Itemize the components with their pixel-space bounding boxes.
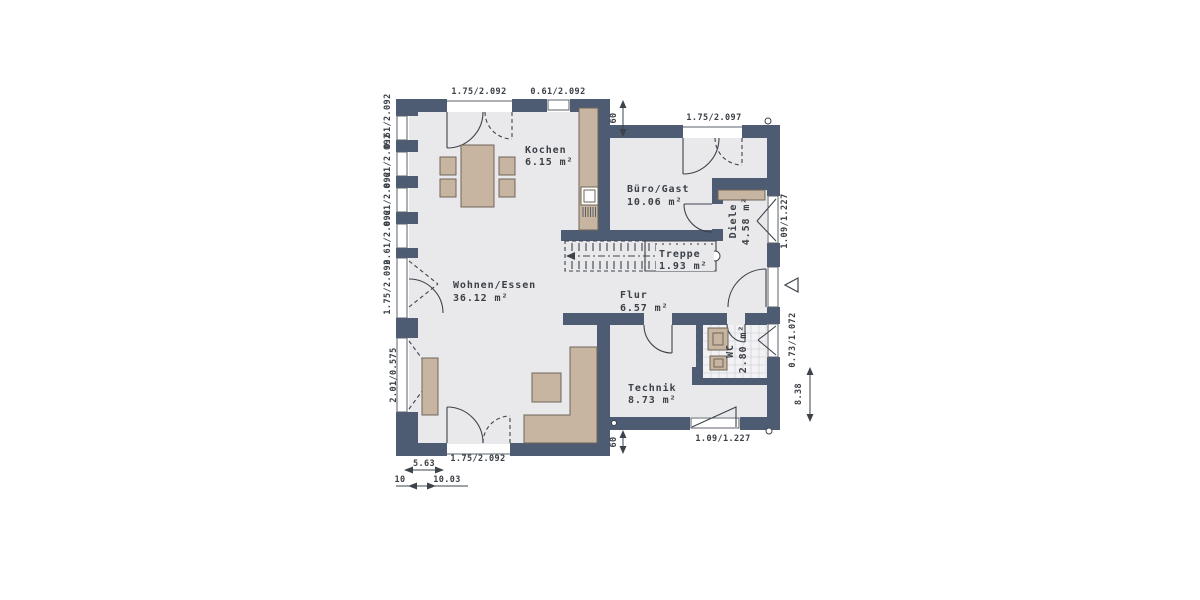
room-area-technik: 8.73 m²	[628, 395, 676, 406]
dim-bottom-door: 1.75/2.092	[450, 454, 505, 464]
arrow-right	[435, 467, 444, 474]
dim-width-partial: 5.63	[413, 459, 435, 469]
window-top	[548, 100, 569, 110]
window-left-1	[397, 116, 407, 140]
dim-wc-window: 0.73/1.072	[788, 312, 798, 367]
dim-width-tick: 10	[394, 475, 405, 485]
dim-top-door: 1.75/2.092	[451, 87, 506, 97]
window-door-left	[397, 258, 407, 318]
entrance-marker-icon	[785, 278, 798, 292]
window-technik	[691, 418, 739, 428]
room-area-buero: 10.06 m²	[627, 197, 682, 208]
chair	[440, 179, 456, 197]
dim-height-total: 8.38	[794, 383, 804, 405]
corner-marker	[766, 428, 772, 434]
room-label-technik: Technik	[628, 382, 676, 394]
chair	[440, 157, 456, 175]
room-area-kochen: 6.15 m²	[525, 157, 573, 168]
arrow-up	[620, 430, 627, 438]
room-area-wc: 2.80 m²	[738, 325, 749, 373]
room-area-diele: 4.58 m²	[741, 197, 752, 245]
room-area-treppe: 1.93 m²	[659, 261, 707, 272]
dim-diele-window: 1.09/1.227	[780, 193, 790, 248]
arrow-up	[807, 367, 814, 375]
chair	[499, 157, 515, 175]
dining-table	[461, 145, 494, 207]
dim-buero-door: 1.75/2.097	[686, 113, 741, 123]
room-area-wohnen: 36.12 m²	[453, 293, 508, 304]
floor-passage	[598, 240, 610, 325]
room-label-diele: Diele	[727, 204, 739, 239]
room-label-wohnen: Wohnen/Essen	[453, 280, 536, 291]
dim-left-door: 1.75/2.092	[383, 259, 393, 314]
floor-plan-canvas: Kochen 6.15 m² Büro/Gast 10.06 m² Wohnen…	[0, 0, 1200, 600]
room-area-flur: 6.57 m²	[620, 303, 668, 314]
dim-technik-window: 1.09/1.227	[695, 434, 750, 444]
window-left-4	[397, 224, 407, 248]
window-left-3	[397, 188, 407, 212]
entrance-door-frame	[768, 267, 778, 307]
arrow-left	[404, 467, 413, 474]
arrow-down	[807, 414, 814, 422]
corner-marker	[765, 118, 771, 124]
room-label-buero: Büro/Gast	[627, 184, 689, 195]
chair	[499, 179, 515, 197]
dim-offset-top: 60	[609, 112, 619, 123]
dim-width-partial2: 10.03	[433, 475, 461, 485]
corner-marker	[612, 421, 617, 426]
arrow-up	[620, 100, 627, 108]
dim-left-low-window: 2.01/0.575	[389, 347, 399, 402]
arrow-down	[620, 446, 627, 454]
room-label-treppe: Treppe	[659, 249, 701, 260]
dim-offset-bottom: 60	[609, 436, 619, 447]
room-label-wc: WC	[725, 344, 736, 358]
window-left-2	[397, 152, 407, 176]
arrow-left	[408, 483, 417, 490]
floor-plan-drawing: Kochen 6.15 m² Büro/Gast 10.06 m² Wohnen…	[0, 0, 1200, 600]
room-label-flur: Flur	[620, 290, 648, 301]
coffee-table	[532, 373, 561, 402]
dim-left-window-4: 0.61/2.092	[383, 209, 393, 264]
sideboard	[422, 358, 438, 415]
room-label-kochen: Kochen	[525, 145, 567, 156]
dim-top-window: 0.61/2.092	[530, 87, 585, 97]
